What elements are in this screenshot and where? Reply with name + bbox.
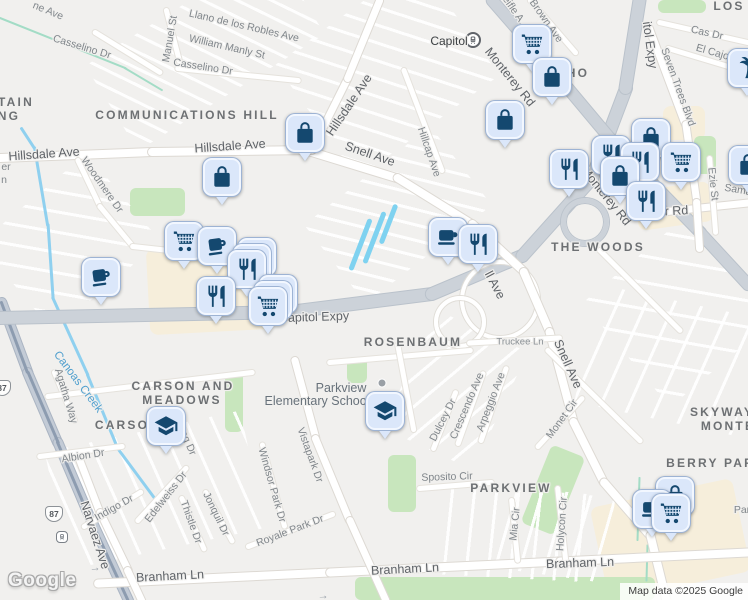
street-label: ne Ave xyxy=(31,0,65,23)
school-icon xyxy=(366,392,404,430)
place-marker-shopping-bag[interactable] xyxy=(533,58,571,108)
street xyxy=(657,19,748,45)
place-marker-shopping-cart[interactable] xyxy=(249,287,287,337)
street-label: er xyxy=(1,161,10,173)
park-area xyxy=(388,455,416,512)
map-canvas[interactable]: ne AveCasselino DrManuel StLlano de los … xyxy=(0,0,748,600)
school-icon xyxy=(147,407,185,445)
street xyxy=(259,442,287,529)
neighborhood-label: MEADOWS xyxy=(142,393,221,407)
vistapark-drive xyxy=(291,356,320,442)
creek-line xyxy=(0,17,61,43)
place-marker-palm-tree[interactable] xyxy=(728,49,748,99)
place-marker-shopping-bag[interactable] xyxy=(203,158,241,208)
shopping-bag-icon xyxy=(486,101,524,139)
place-marker-shopping-cart[interactable] xyxy=(652,494,690,544)
park-area xyxy=(658,0,706,13)
vistapark-drive xyxy=(312,434,354,524)
neighborhood-label: CARSO xyxy=(95,418,149,432)
capitol-expressway xyxy=(619,0,647,95)
shopping-bag-icon xyxy=(533,58,571,96)
place-marker-shopping-cart[interactable] xyxy=(662,143,700,193)
school-poi-label[interactable]: Elementary School xyxy=(265,394,370,408)
restaurant-icon xyxy=(550,150,588,188)
oneway-arrow-icon: → xyxy=(317,590,329,600)
poi-dot[interactable] xyxy=(378,379,387,388)
neighborhood-label: TAIN xyxy=(0,95,34,109)
transit-station-icon[interactable] xyxy=(465,32,481,48)
shopping-cart-icon xyxy=(652,494,690,532)
place-marker-shopping-bag[interactable] xyxy=(486,101,524,151)
restaurant-icon xyxy=(197,277,235,315)
place-marker-restaurant[interactable] xyxy=(550,150,588,200)
highway-87-shield: 87 xyxy=(0,380,11,396)
park-area xyxy=(130,188,185,216)
neighborhood-label: LOS xyxy=(713,0,744,13)
google-logo[interactable]: Google xyxy=(8,570,76,592)
shopping-bag-icon xyxy=(286,114,324,152)
place-marker-restaurant[interactable] xyxy=(197,277,235,327)
residential-grid xyxy=(0,153,161,331)
school-poi-label[interactable]: Parkview xyxy=(316,381,367,395)
place-marker-shopping-bag[interactable] xyxy=(286,114,324,164)
neighborhood-label: BERRY PARK xyxy=(666,456,748,470)
restaurant-icon xyxy=(459,225,497,263)
shopping-cart-icon xyxy=(662,143,700,181)
restaurant-icon xyxy=(627,182,665,220)
creek-canoas xyxy=(86,373,119,449)
palm-tree-icon xyxy=(728,49,748,87)
shopping-cart-icon xyxy=(249,287,287,325)
shopping-bag-icon xyxy=(203,158,241,196)
neighborhood-label: NG xyxy=(0,109,20,123)
coffee-cup-icon xyxy=(82,258,120,296)
park-area xyxy=(355,577,655,600)
place-marker-coffee-cup[interactable] xyxy=(82,258,120,308)
street-label: n xyxy=(1,174,7,186)
place-marker-restaurant[interactable] xyxy=(459,225,497,275)
place-marker-school[interactable] xyxy=(147,407,185,457)
place-marker-restaurant[interactable] xyxy=(627,182,665,232)
shopping-bag-icon xyxy=(729,146,748,184)
light-rail-stop-icon[interactable] xyxy=(56,531,68,543)
place-marker-school[interactable] xyxy=(366,392,404,442)
map-attribution: Map data ©2025 Google xyxy=(620,583,748,600)
place-marker-shopping-bag[interactable] xyxy=(729,146,748,196)
